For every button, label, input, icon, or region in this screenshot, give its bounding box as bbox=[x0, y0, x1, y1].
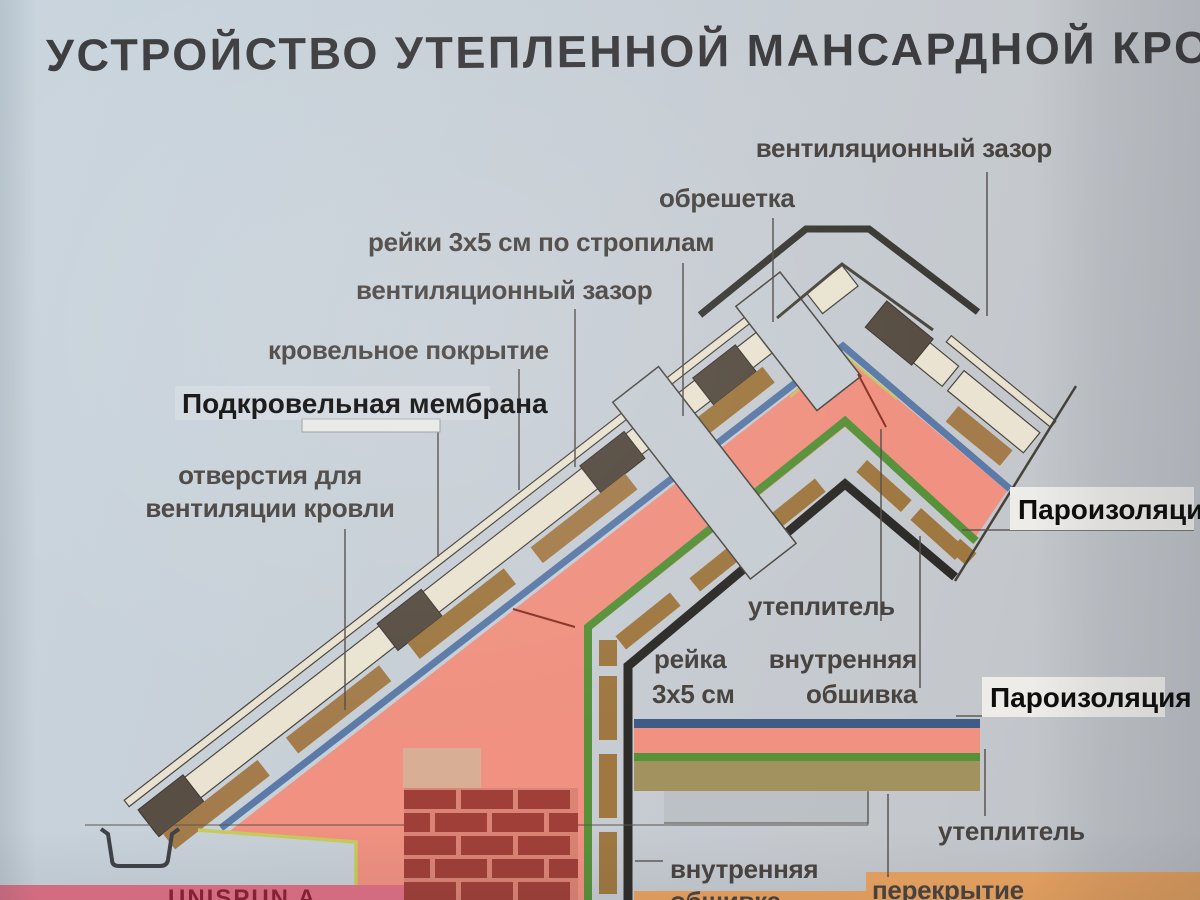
label-inner-lining-bottom-1: внутренняя bbox=[670, 854, 818, 884]
label-obreshetka: обрешетка bbox=[659, 183, 795, 213]
label-vent-holes-2: вентиляции кровли bbox=[145, 493, 394, 523]
label-inner-lining-mid-2: обшивка bbox=[806, 679, 918, 709]
label-reika-2: 3х5 см bbox=[652, 679, 735, 709]
roof-diagram: УСТРОЙСТВО УТЕПЛЕННОЙ МАНСАРДНОЙ КРОВЛИ … bbox=[0, 0, 1200, 900]
label-roof-covering: кровельное покрытие bbox=[268, 335, 549, 365]
label-reiki-stropila: рейки 3х5 см по стропилам bbox=[368, 227, 714, 257]
brand-text: UNISPUN A bbox=[168, 885, 317, 900]
label-vent-holes-1: отверстия для bbox=[178, 460, 362, 490]
label-insulation-bottom: утеплитель bbox=[938, 816, 1085, 846]
wall-top-block bbox=[403, 748, 481, 788]
page-title: УСТРОЙСТВО УТЕПЛЕННОЙ МАНСАРДНОЙ КРОВЛИ bbox=[46, 21, 1200, 81]
label-floor-slab: перекрытие bbox=[872, 875, 1024, 900]
label-inner-lining-bottom-2: обшивка bbox=[670, 886, 782, 900]
label-membrane: Подкровельная мембрана bbox=[182, 388, 548, 419]
label-vapor-barrier-lower: Пароизоляция bbox=[990, 682, 1192, 713]
label-vent-gap-top: вентиляционный зазор bbox=[756, 133, 1052, 163]
label-reika-1: рейка bbox=[654, 644, 727, 674]
label-insulation-mid: утеплитель bbox=[748, 591, 895, 621]
insulation-edge-accent bbox=[198, 830, 356, 887]
label-vapor-barrier-upper: Пароизоляция bbox=[1018, 494, 1200, 525]
label-inner-lining-mid-1: внутренняя bbox=[769, 644, 917, 674]
whiteout-bar bbox=[302, 419, 440, 432]
poster-photo: УСТРОЙСТВО УТЕПЛЕННОЙ МАНСАРДНОЙ КРОВЛИ … bbox=[0, 0, 1200, 900]
label-vent-gap-left: вентиляционный зазор bbox=[356, 275, 652, 305]
